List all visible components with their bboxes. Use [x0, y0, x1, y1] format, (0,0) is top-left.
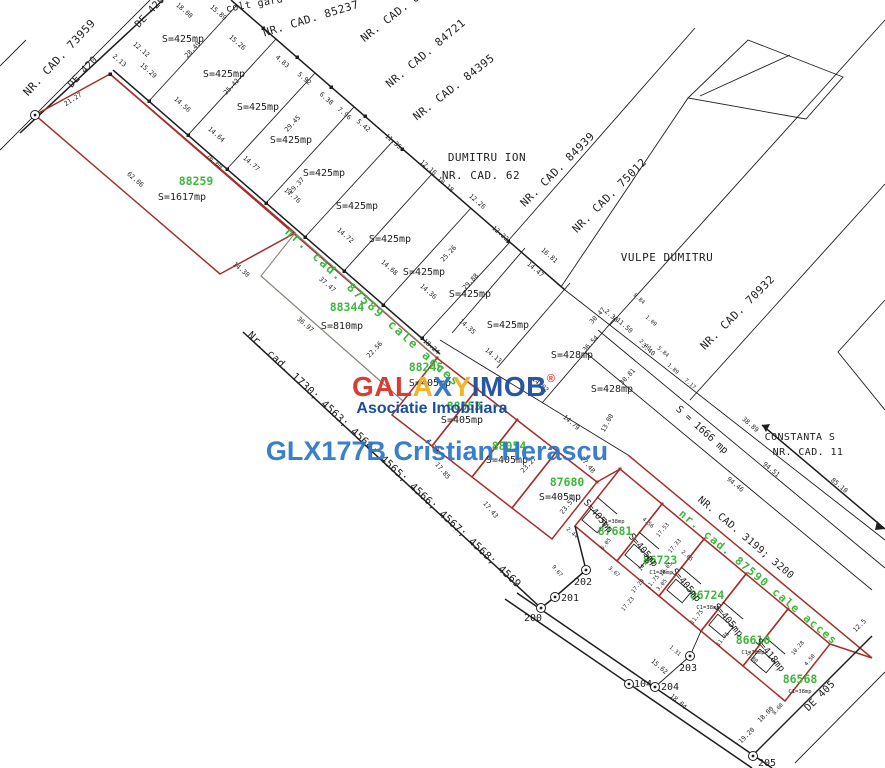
parcel-id-86568: 86568 [783, 672, 818, 686]
measurement-label: 22.56 [365, 340, 384, 360]
cadastral-plan-drawing: NR. CAD. 73959 DE 420 DE 420 colt gard N… [0, 0, 885, 768]
measurement-label: 12.5 [851, 617, 868, 634]
neighbor-label-cad11: NR. CAD. 11 [773, 447, 844, 458]
neighbor-label-cad75012: NR. CAD. 75012 [570, 156, 650, 236]
measurement-label: 17.43 [481, 500, 500, 520]
neighbor-label-cad62: NR. CAD. 62 [442, 169, 520, 182]
registered-mark-icon: ® [547, 373, 556, 385]
measurement-label: 5.84 [656, 346, 670, 360]
measurement-label: 16.81 [539, 246, 559, 265]
measurement-label: 94.51 [761, 460, 781, 479]
measurement-label: 15.26 [227, 33, 247, 52]
measurement-label: 25.26 [439, 244, 458, 264]
neighbor-label-constanta: CONSTANTA S [765, 432, 836, 443]
measurement-label: 17.53 [656, 522, 671, 539]
measurement-label: 4.83 [274, 53, 291, 69]
neighbor-label-cad84939: NR. CAD. 84939 [518, 130, 598, 210]
logo-letter: O [504, 371, 526, 402]
parcel-id-88344: 88344 [330, 300, 365, 314]
measurement-label: 17.29 [631, 578, 646, 595]
area-label-425-7: S=425mp [369, 234, 411, 245]
measurement-label: 3.67 [607, 566, 621, 579]
neighbor-label-dumitru-ion: DUMITRU ION [448, 151, 526, 164]
measurement-label: 38.89 [740, 415, 760, 434]
parcel-id-labels: 88259 S=1617mp 88344 S=810mp 88245 S=405… [158, 174, 817, 695]
area-label-425-3: S=425mp [237, 102, 279, 113]
measurement-label: 18.04 [668, 692, 688, 711]
point-label-205: 205 [758, 758, 776, 768]
watermark-subtitle: Asociatie Imobiliara [356, 400, 507, 417]
galaxyimob-logo: GALAXYIMOB® [352, 371, 555, 402]
logo-letter: Y [453, 371, 472, 402]
watermark-agent-code: GLX177B Cristian Herascu [266, 436, 608, 466]
logo-letter: I [472, 371, 480, 402]
logo-letter: M [480, 371, 504, 402]
road-label-cale-acces-87590: nr. cad. 87590 cale acces [676, 507, 840, 647]
measurement-label: 10.28 [791, 640, 806, 657]
parcel-id-88259: 88259 [179, 174, 214, 188]
parcel-area-88259: S=1617mp [158, 192, 206, 203]
measurement-label: 14.47 [525, 260, 545, 279]
right-neighbor-lines [565, 20, 885, 590]
measurement-label: 9.67 [550, 564, 563, 578]
point-label-203: 203 [679, 663, 697, 674]
measurement-label: 14.35 [457, 317, 477, 336]
measurement-label: 85.10 [829, 476, 849, 495]
point-label-200: 200 [524, 613, 542, 624]
measurement-label: 18.00 [756, 705, 776, 725]
area-label-428-2: S=428mp [591, 384, 633, 395]
measurement-label: 11.75 [716, 631, 731, 648]
measurement-label: 76.60 [204, 152, 224, 171]
measurement-label: 18.00 [174, 1, 194, 20]
measurement-label: 14.56 [172, 95, 192, 114]
logo-letter: A [374, 371, 395, 402]
cadastral-map: NR. CAD. 73959 DE 420 DE 420 colt gard N… [0, 0, 885, 768]
measurement-label: 14.79 [561, 413, 581, 432]
parcel-id-87680: 87680 [550, 475, 585, 489]
measurement-label: 8.84 [632, 293, 646, 307]
parcel-area-88344: S=810mp [321, 321, 363, 332]
area-label-425-8: S=425mp [403, 267, 445, 278]
road-label-de420-b: DE 420 [133, 0, 167, 30]
area-label-425-2: S=425mp [203, 69, 245, 80]
point-label-201: 201 [561, 593, 579, 604]
point-label-202: 202 [574, 577, 592, 588]
measurement-label: 4.50 [804, 653, 817, 667]
point-label-104: 104 [634, 679, 652, 690]
measurement-label: 12.16 [418, 158, 438, 177]
measurement-label: 14.68 [379, 258, 399, 277]
area-label-425-4: S=425mp [270, 135, 312, 146]
measurement-label: 29.45 [283, 114, 302, 134]
measurement-label: 7.17 [683, 378, 697, 391]
logo-letter: G [352, 371, 374, 402]
measurement-label: 21.27 [63, 91, 84, 108]
measurement-label: 62.06 [125, 170, 145, 189]
measurement-label: 13.00 [599, 412, 615, 433]
logo-letter: B [526, 371, 547, 402]
measurement-label: 6.38 [318, 90, 335, 106]
measurement-label: 36.97 [295, 315, 315, 334]
area-label-425-9: S=425mp [449, 289, 491, 300]
measurement-label: 7.96 [336, 105, 353, 121]
measurement-label: 1.09 [644, 315, 658, 328]
measurement-label: 15.62 [649, 657, 669, 676]
measurement-label: 14.13 [483, 346, 503, 365]
area-label-425-10: S=425mp [487, 320, 529, 331]
point-label-204: 204 [661, 682, 679, 693]
top-right-parcel-outline [688, 40, 843, 119]
measurement-label: 12.12 [131, 40, 151, 59]
neighbor-label-vulpe: VULPE DUMITRU [621, 251, 714, 264]
measurement-label: 19.20 [737, 726, 757, 746]
measurement-label: 94.46 [725, 475, 745, 494]
neighbor-label-cad70932: NR. CAD. 70932 [698, 273, 778, 353]
measurement-label: 2.44 [565, 527, 579, 541]
logo-letter: X [433, 371, 452, 402]
measurement-label: 30.47 [588, 306, 607, 326]
logo-letter: L [395, 371, 413, 402]
measurement-label: 14.64 [206, 125, 226, 144]
measurement-label: 6.05 [600, 537, 613, 551]
neighbor-label-colt-gard: colt gard [225, 0, 284, 15]
measurement-label: 17.23 [621, 596, 636, 613]
building-label-86568: C1=38mp [788, 689, 811, 695]
measurement-label: 29.37 [287, 176, 306, 196]
measurement-label: 14.72 [335, 226, 355, 245]
area-label-425-6: S=425mp [336, 201, 378, 212]
road-label-de420-a: DE 420 [66, 54, 100, 90]
measurement-label: 11.75 [690, 609, 705, 626]
area-label-425-5: S=425mp [303, 168, 345, 179]
measurement-label: 14.36 [418, 282, 438, 301]
measurement-label: 2.13 [111, 52, 128, 68]
measurement-label: 12.22 [490, 224, 510, 243]
measurement-label: 14.77 [241, 154, 261, 173]
logo-letter: A [413, 371, 434, 402]
neighbor-label-cad847: NR. CAD. 847 [358, 0, 433, 45]
measurement-label: 15.29 [138, 61, 158, 80]
measurement-label: 1.31 [668, 645, 682, 658]
